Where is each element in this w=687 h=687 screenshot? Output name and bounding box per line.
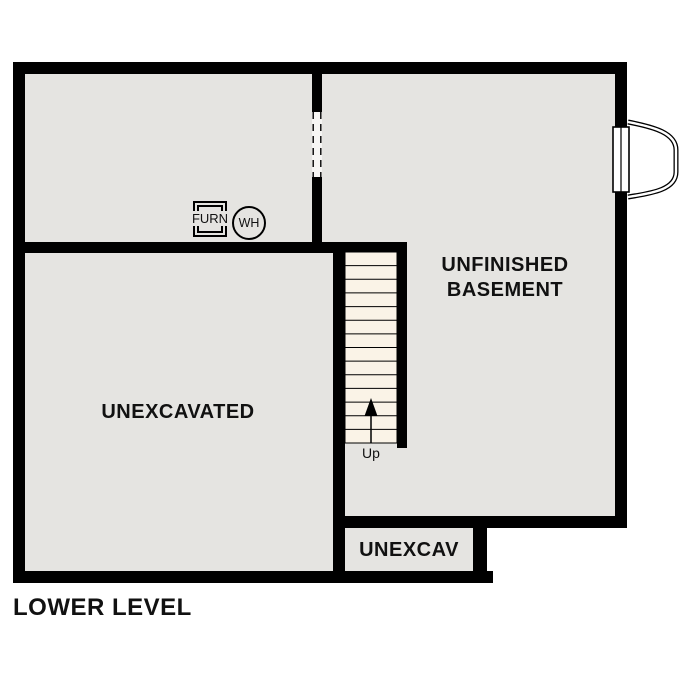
water-heater-label: WH bbox=[239, 216, 260, 230]
unexcav-room-label: UNEXCAV bbox=[345, 538, 473, 563]
wall-divider-lower bbox=[312, 177, 322, 242]
basement-label-line1: UNFINISHED bbox=[385, 253, 625, 278]
wall-top bbox=[13, 62, 627, 74]
floor-areas bbox=[25, 74, 615, 571]
water-heater-symbol: WH bbox=[232, 206, 266, 240]
wall-middle-horizontal bbox=[13, 242, 407, 253]
plan-title: LOWER LEVEL bbox=[13, 594, 192, 622]
upper-left-room-floor bbox=[25, 74, 312, 242]
basement-label-line2: BASEMENT bbox=[385, 278, 625, 303]
stairs-up-label: Up bbox=[341, 445, 401, 461]
unexcavated-room-label: UNEXCAVATED bbox=[58, 400, 298, 425]
floor-plan: FURN WH UNFINISHED BASEMENT UNEXCAVATED … bbox=[0, 0, 687, 687]
wall-left bbox=[13, 62, 25, 583]
bow-window bbox=[613, 122, 676, 197]
wall-opening-gap bbox=[312, 112, 322, 177]
wall-unexcav-right bbox=[473, 516, 487, 583]
wall-unexcavated-right bbox=[333, 242, 345, 583]
furnace-label: FURN bbox=[186, 211, 234, 226]
basement-room-label: UNFINISHED BASEMENT bbox=[385, 253, 625, 303]
wall-divider-upper bbox=[312, 74, 322, 112]
wall-bottom bbox=[13, 571, 493, 583]
floor-plan-drawing bbox=[0, 0, 687, 687]
